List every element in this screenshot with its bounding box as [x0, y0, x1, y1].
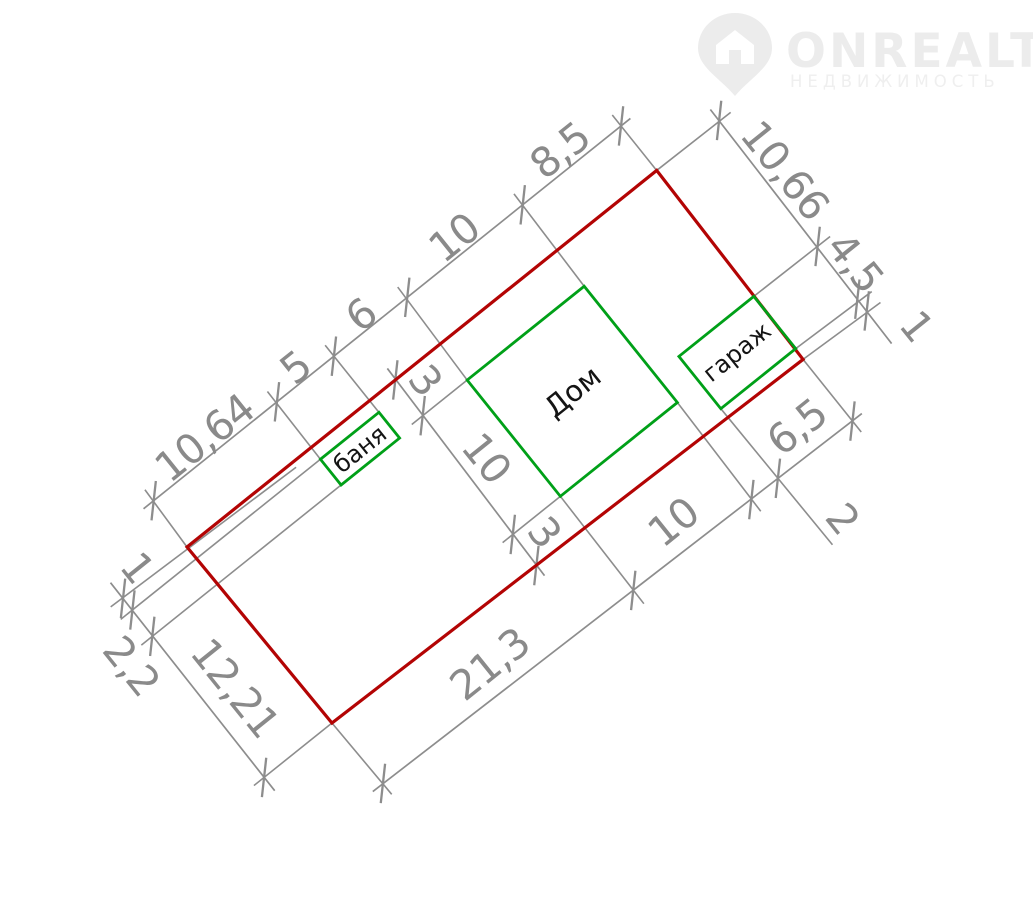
- dim-bottom-left-1: 2,2: [93, 627, 169, 706]
- dim-top-right-2: 1: [890, 302, 943, 352]
- rotated-plan-group: Дом баня гараж 10,64 5 6 10 8,5 10,66 4,…: [14, 12, 1009, 910]
- dim-bottom-right-3: 6,5: [758, 389, 837, 465]
- dim-top-right-0: 10,66: [731, 111, 839, 229]
- site-plan-page: ONREALT НЕДВИЖИМОСТЬ: [0, 0, 1033, 910]
- dim-bottom-left-2: 12,21: [181, 629, 289, 747]
- dim-bottom-left-0: 1: [110, 543, 163, 593]
- extension-lines: [67, 56, 982, 910]
- dim-bottom-right-0: 21,3: [441, 618, 539, 710]
- dim-bottom-right-1: 10: [639, 488, 708, 557]
- dim-top-right-1: 4,5: [817, 223, 893, 302]
- dim-top-left-0: 10,64: [146, 384, 264, 492]
- dim-top-left-2: 6: [336, 288, 386, 341]
- watermark-brand: ONREALT: [786, 24, 1033, 79]
- dim-top-left-3: 10: [420, 203, 489, 272]
- house-door: [729, 50, 741, 64]
- dimension-labels: 10,64 5 6 10 8,5 10,66 4,5 1 21,3 10 2 6…: [14, 12, 1008, 910]
- dim-top-left-4: 8,5: [521, 112, 600, 188]
- dim-bottom-right-2: 2: [816, 494, 869, 544]
- garage-label: гараж: [697, 317, 776, 388]
- onrealt-watermark: ONREALT НЕДВИЖИМОСТЬ: [698, 13, 1033, 96]
- site-plan-drawing: ONREALT НЕДВИЖИМОСТЬ: [0, 0, 1033, 910]
- watermark-tagline: НЕДВИЖИМОСТЬ: [790, 72, 1000, 91]
- house-label: Дом: [538, 359, 608, 424]
